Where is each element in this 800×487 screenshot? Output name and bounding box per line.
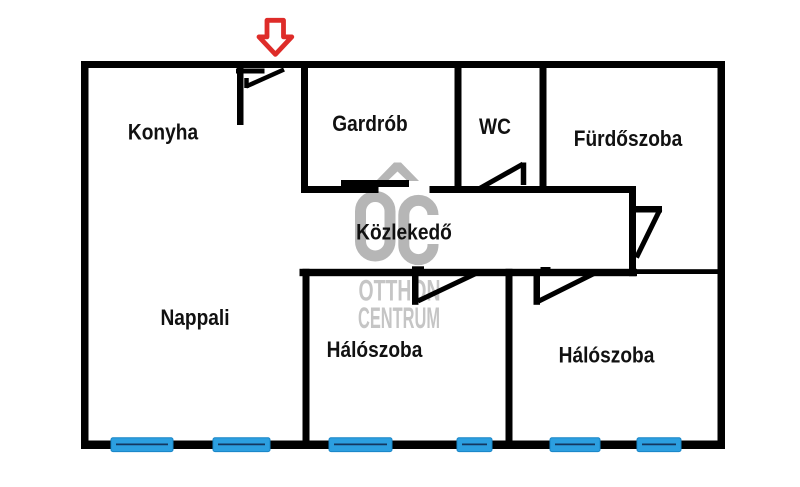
svg-text:Hálószoba: Hálószoba <box>559 343 655 368</box>
svg-text:Hálószoba: Hálószoba <box>327 338 423 363</box>
svg-text:Közlekedő: Közlekedő <box>356 220 452 245</box>
svg-text:Nappali: Nappali <box>160 306 229 331</box>
svg-text:Gardrób: Gardrób <box>332 112 407 137</box>
svg-text:CENTRUM: CENTRUM <box>358 302 440 335</box>
svg-text:Fürdőszoba: Fürdőszoba <box>574 127 683 152</box>
svg-text:Konyha: Konyha <box>128 120 199 145</box>
svg-text:WC: WC <box>479 115 511 140</box>
